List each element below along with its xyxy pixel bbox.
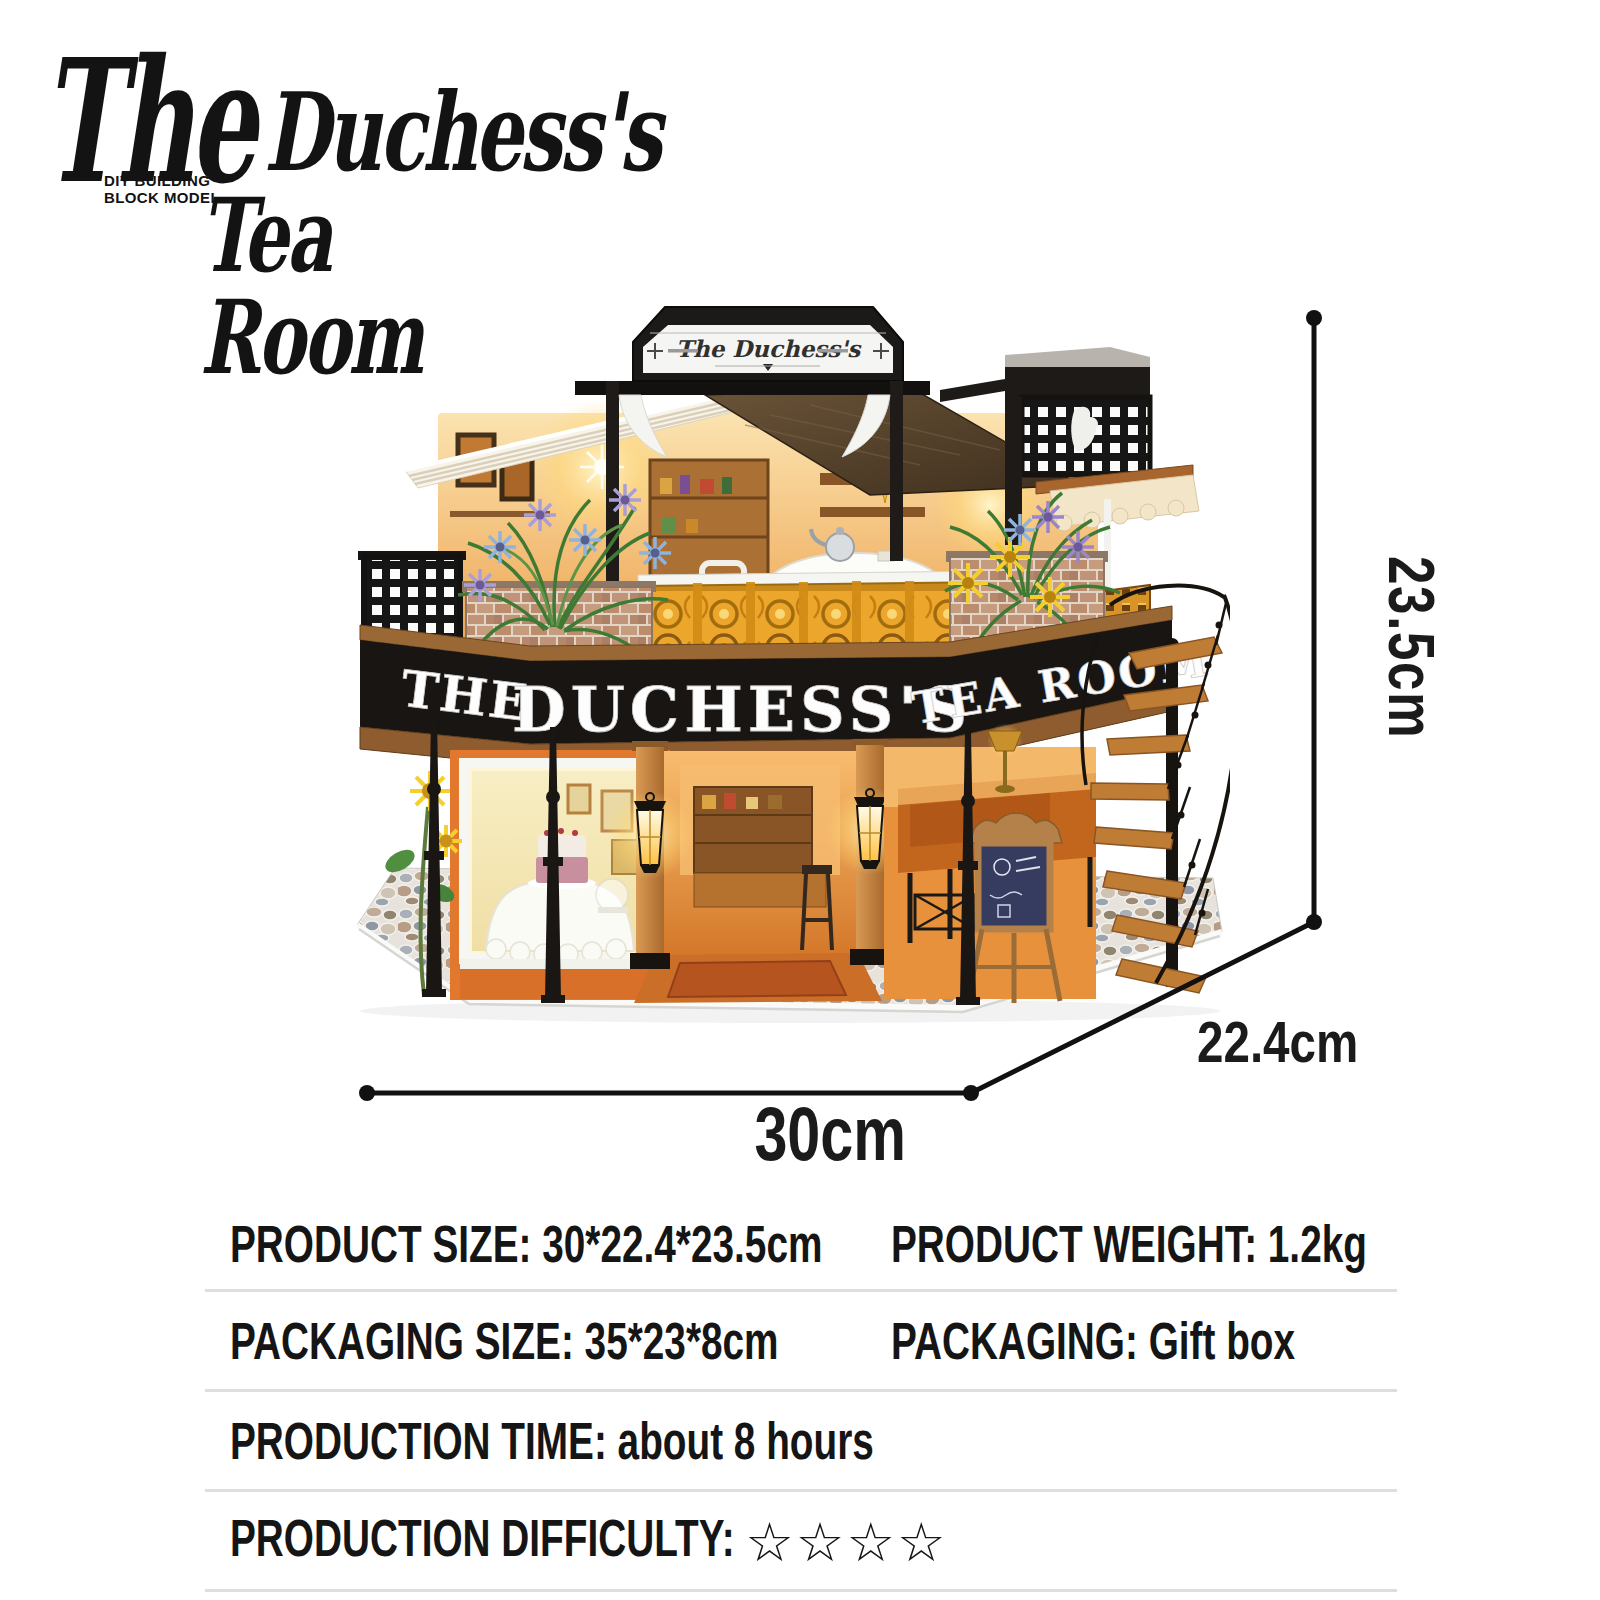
spec-row-production-difficulty: PRODUCTION DIFFICULTY:☆☆☆☆ xyxy=(205,1492,1397,1592)
spec-packaging-size: PACKAGING SIZE: 35*23*8cm xyxy=(230,1315,952,1366)
dimension-height-label: 23.5cm xyxy=(1374,556,1448,739)
difficulty-label: PRODUCTION DIFFICULTY: xyxy=(230,1509,735,1566)
top-sign-text: The Duchess's xyxy=(676,335,862,362)
logo-tagline-line1: DIY BUILDING xyxy=(104,172,210,189)
spec-production-time: PRODUCTION TIME: about 8 hours xyxy=(230,1415,1077,1466)
difficulty-stars: ☆☆☆☆ xyxy=(745,1515,947,1569)
fascia-text-duchesss: DUCHESS'S xyxy=(512,673,972,746)
spec-row-production-time: PRODUCTION TIME: about 8 hours xyxy=(205,1392,1397,1492)
spec-packaging-type: PACKAGING: Gift box xyxy=(891,1315,1423,1366)
dimension-depth-label: 22.4cm xyxy=(1197,1008,1394,1075)
miniature-tearoom-illustration: The Duchess's xyxy=(350,295,1230,1055)
spec-row-product-size: PRODUCT SIZE: 30*22.4*23.5cm PRODUCT WEI… xyxy=(205,1198,1397,1292)
ground-floor xyxy=(382,719,1096,1005)
spec-row-packaging-size: PACKAGING SIZE: 35*23*8cm PACKAGING: Gif… xyxy=(205,1292,1397,1392)
logo-script-duchess: Duchess's xyxy=(264,78,659,186)
lantern-left xyxy=(606,791,694,879)
brand-logo: The Duchess's DIY BUILDING BLOCK MODEL T… xyxy=(42,20,702,300)
spec-production-difficulty: PRODUCTION DIFFICULTY:☆☆☆☆ xyxy=(230,1512,1110,1569)
spec-product-weight: PRODUCT WEIGHT: 1.2kg xyxy=(891,1218,1517,1269)
cake xyxy=(538,835,586,859)
dimension-width-label: 30cm xyxy=(700,1090,960,1177)
teapot xyxy=(826,533,854,561)
spec-table: PRODUCT SIZE: 30*22.4*23.5cm PRODUCT WEI… xyxy=(205,1198,1397,1592)
product-photo: The Duchess's xyxy=(350,295,1230,1055)
